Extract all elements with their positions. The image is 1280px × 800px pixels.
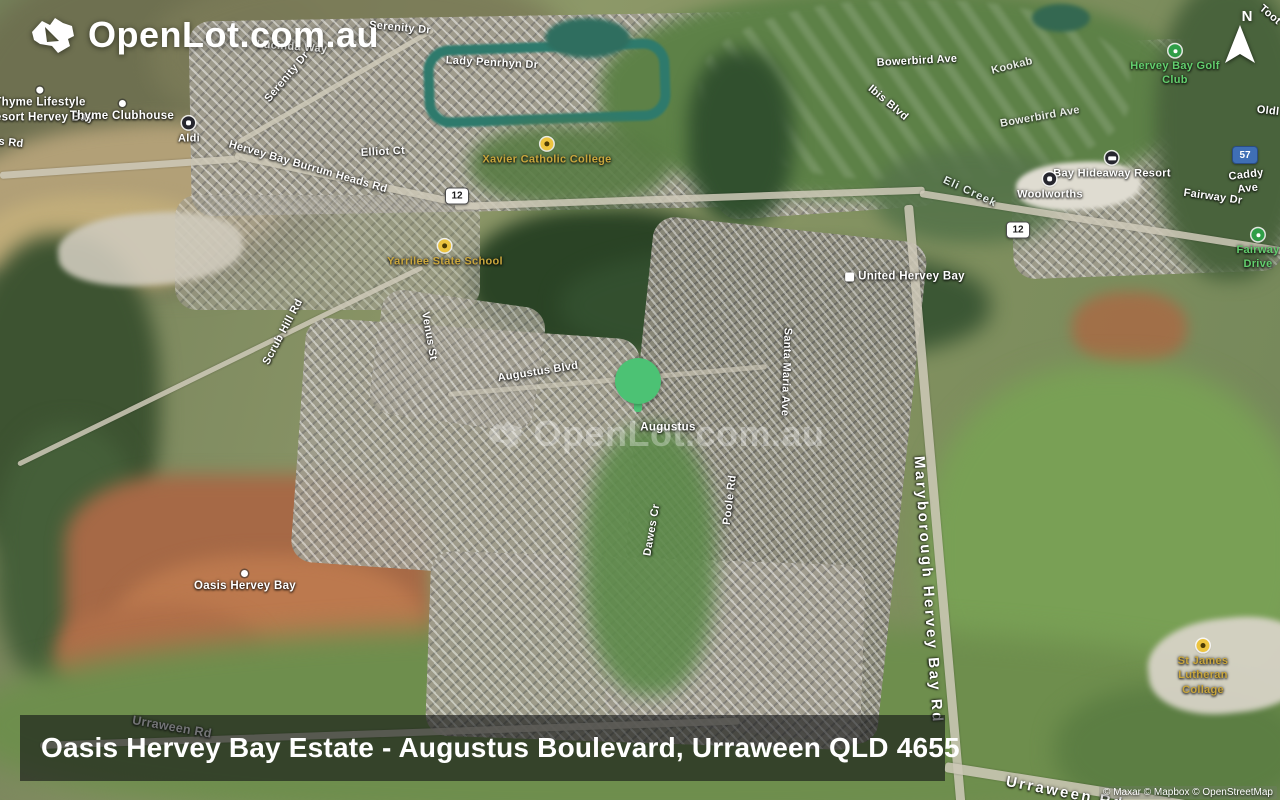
terrain-suburb [367, 287, 548, 434]
lodging-icon [1106, 151, 1119, 164]
dot-icon [36, 87, 43, 94]
pin-head [615, 358, 661, 404]
route-shield: 12 [1006, 222, 1030, 239]
compass-label: N [1242, 8, 1253, 25]
shop-icon [1043, 172, 1056, 185]
label-hervey-bay-golf-club: Hervey Bay Golf Club [1123, 44, 1228, 88]
label-united-hervey-bay: United Hervey Bay [845, 270, 965, 285]
route-shield: 57 [1232, 146, 1258, 164]
label-yarrilee-state-school: Yarrilee State School [387, 239, 503, 268]
label-augustus: Augustus [640, 421, 695, 436]
label-thyme-clubhouse: Thyme Clubhouse [70, 100, 174, 124]
label-elliot-ct: Elliot Ct [361, 144, 406, 161]
label-aldi: Aldi [178, 116, 200, 145]
dot-icon [119, 100, 126, 107]
pond-water [545, 18, 630, 58]
label-st-james-lutheran-collage: St James Lutheran Collage [1165, 639, 1242, 697]
fuel-icon [845, 273, 854, 282]
label-woolworths: Woolworths [1017, 172, 1083, 201]
caption-text: Oasis Hervey Bay Estate - Augustus Boule… [41, 732, 960, 764]
north-arrow-icon [1224, 25, 1256, 65]
pond-water [1032, 4, 1090, 32]
caption-bar: Oasis Hervey Bay Estate - Augustus Boule… [20, 715, 945, 781]
map-attribution[interactable]: © Maxar © Mapbox © OpenStreetMap [1099, 786, 1277, 799]
label-fairway-drive-park: Fairway Drive [1236, 228, 1279, 272]
route-shield: 12 [445, 188, 469, 205]
label-old-fragment: Oldl [1256, 103, 1280, 120]
brand-text: OpenLot.com.au [88, 14, 379, 56]
school-icon [1197, 639, 1210, 652]
label-s-rd-fragment: s Rd [0, 135, 24, 152]
school-icon [439, 239, 452, 252]
label-oasis-hervey-bay: Oasis Hervey Bay [194, 570, 296, 594]
park-icon [1251, 228, 1264, 241]
map-canvas[interactable]: Serenity Dr Lucinda Way Serenity Dr Lady… [0, 0, 1280, 800]
dot-icon [241, 570, 248, 577]
canal-water [423, 38, 672, 129]
golf-icon [1169, 44, 1182, 57]
openlot-logo-icon [28, 14, 76, 56]
terrain-cleared-dirt [1072, 292, 1187, 364]
label-xavier-catholic-college: Xavier Catholic College [482, 137, 611, 166]
terrain-park [585, 425, 715, 695]
location-pin[interactable] [615, 358, 661, 404]
school-icon [540, 137, 553, 150]
shop-icon [182, 116, 195, 129]
compass-north[interactable]: N [1224, 8, 1256, 65]
brand-logo[interactable]: OpenLot.com.au [28, 14, 379, 56]
